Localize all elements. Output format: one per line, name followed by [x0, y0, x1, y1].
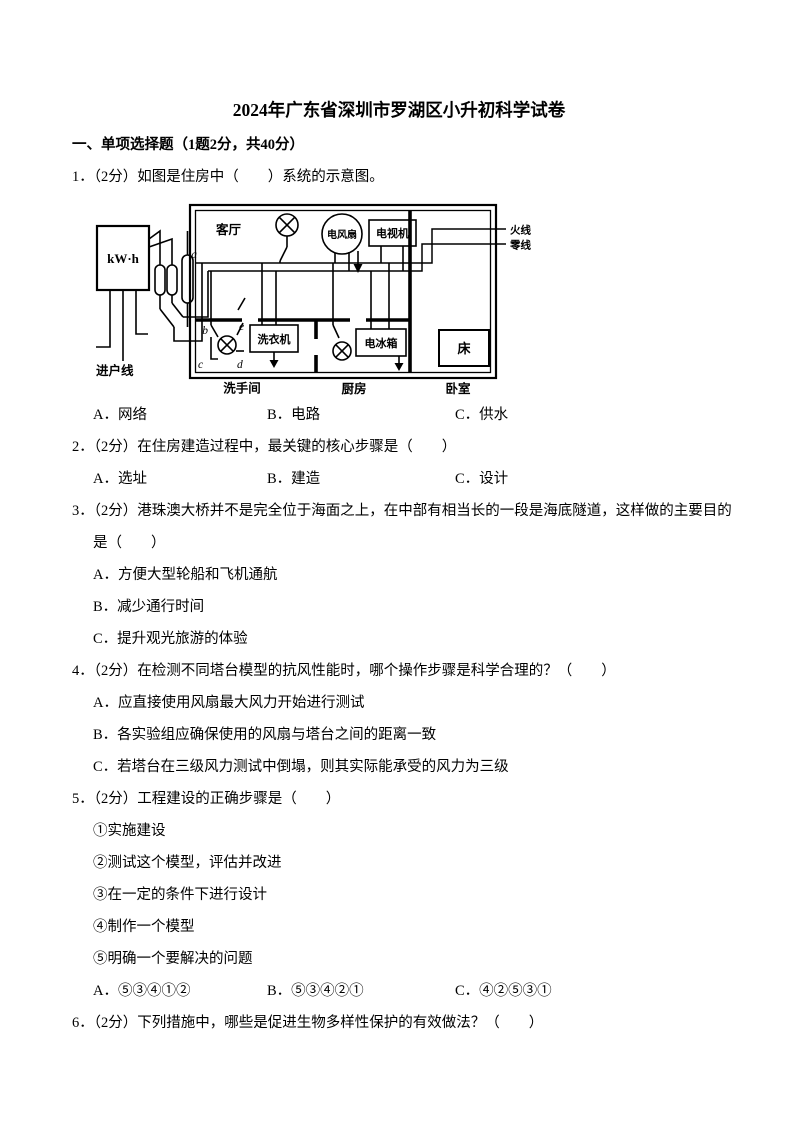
- bedroom-label: 卧室: [445, 381, 471, 396]
- section-heading: 一、单项选择题（1题2分，共40分）: [72, 129, 726, 161]
- diagram-point-a: a: [191, 249, 197, 261]
- option-b: B．各实验组应确保使用的风扇与塔台之间的距离一致: [72, 719, 726, 751]
- option-a: A．⑤③④①②: [93, 975, 267, 1007]
- fan-label: 电风扇: [327, 228, 357, 241]
- bathroom-label: 洗手间: [223, 381, 261, 396]
- question-1: 1．（2分）如图是住房中（ ）系统的示意图。: [72, 161, 726, 431]
- incoming-line-label: 进户线: [96, 363, 134, 378]
- living-room-label: 客厅: [215, 222, 242, 237]
- kitchen-label: 厨房: [341, 381, 366, 396]
- option-c: C．提升观光旅游的体验: [72, 623, 726, 655]
- diagram-point-d: d: [237, 359, 243, 371]
- bathroom-circuit: [211, 271, 245, 359]
- option-b: B．⑤③④②①: [267, 975, 455, 1007]
- option-a: A．应直接使用风扇最大风力开始进行测试: [72, 687, 726, 719]
- question-6-stem: 6．（2分）下列措施中，哪些是促进生物多样性保护的有效做法？（ ）: [72, 1007, 726, 1039]
- option-a: A．选址: [93, 463, 267, 495]
- lamp-icon: [276, 214, 298, 263]
- option-c: C．供水: [455, 399, 726, 431]
- question-5: 5．（2分）工程建设的正确步骤是（ ） ①实施建设 ②测试这个模型，评估并改进 …: [72, 783, 726, 1007]
- diagram-point-b: b: [202, 325, 208, 337]
- live-wire-label: 火线: [510, 224, 531, 237]
- step-item-2: ②测试这个模型，评估并改进: [72, 847, 726, 879]
- page-title: 2024年广东省深圳市罗湖区小升初科学试卷: [72, 97, 726, 123]
- step-item-5: ⑤明确一个要解决的问题: [72, 943, 726, 975]
- question-5-stem: 5．（2分）工程建设的正确步骤是（ ）: [72, 783, 726, 815]
- bed-label: 床: [457, 341, 471, 356]
- incoming-wires: [96, 290, 148, 361]
- diagram-point-c: c: [198, 359, 203, 371]
- option-b: B．电路: [267, 399, 455, 431]
- question-2-options: A．选址 B．建造 C．设计: [72, 463, 726, 495]
- fan-icon: [322, 214, 363, 273]
- washer-label: 洗衣机: [258, 332, 291, 346]
- house-circuit-diagram: kW·h 进户线 客厅 电风扇 电视机 洗衣机 电冰箱 床 洗手间 厨房 卧室 …: [90, 201, 542, 397]
- fuse-switch-cluster: [149, 231, 208, 341]
- question-2-stem: 2．（2分）在住房建造过程中，最关键的核心步骤是（ ）: [72, 431, 726, 463]
- kitchen-circuit: [333, 263, 351, 360]
- circuit-diagram-figure: kW·h 进户线 客厅 电风扇 电视机 洗衣机 电冰箱 床 洗手间 厨房 卧室 …: [90, 201, 542, 397]
- exam-paper-page: 2024年广东省深圳市罗湖区小升初科学试卷 一、单项选择题（1题2分，共40分）…: [0, 0, 794, 1123]
- question-3-stem-line1: 3．（2分）港珠澳大桥并不是完全位于海面之上，在中部有相当长的一段是海底隧道，这…: [72, 495, 726, 527]
- question-1-stem: 1．（2分）如图是住房中（ ）系统的示意图。: [72, 161, 726, 193]
- question-6: 6．（2分）下列措施中，哪些是促进生物多样性保护的有效做法？（ ）: [72, 1007, 726, 1039]
- neutral-wire-label: 零线: [509, 239, 531, 252]
- question-4: 4．（2分）在检测不同塔台模型的抗风性能时，哪个操作步骤是科学合理的？（ ） A…: [72, 655, 726, 783]
- question-1-options: A．网络 B．电路 C．供水: [72, 399, 726, 431]
- meter-label: kW·h: [107, 251, 140, 266]
- diagram-point-e: e: [239, 321, 244, 333]
- question-5-options: A．⑤③④①② B．⑤③④②① C．④②⑤③①: [72, 975, 726, 1007]
- option-b: B．建造: [267, 463, 455, 495]
- option-c: C．设计: [455, 463, 726, 495]
- option-b: B．减少通行时间: [72, 591, 726, 623]
- option-a: A．方便大型轮船和飞机通航: [72, 559, 726, 591]
- question-2: 2．（2分）在住房建造过程中，最关键的核心步骤是（ ） A．选址 B．建造 C．…: [72, 431, 726, 495]
- washer-box: [250, 263, 298, 368]
- question-4-stem: 4．（2分）在检测不同塔台模型的抗风性能时，哪个操作步骤是科学合理的？（ ）: [72, 655, 726, 687]
- step-item-4: ④制作一个模型: [72, 911, 726, 943]
- fridge-label: 电冰箱: [365, 336, 398, 350]
- question-3: 3．（2分）港珠澳大桥并不是完全位于海面之上，在中部有相当长的一段是海底隧道，这…: [72, 495, 726, 655]
- option-a: A．网络: [93, 399, 267, 431]
- step-item-3: ③在一定的条件下进行设计: [72, 879, 726, 911]
- step-item-1: ①实施建设: [72, 815, 726, 847]
- tv-label: 电视机: [376, 226, 409, 240]
- option-c: C．④②⑤③①: [455, 975, 726, 1007]
- option-c: C．若塔台在三级风力测试中倒塌，则其实际能承受的风力为三级: [72, 751, 726, 783]
- question-3-stem-line2: 是（ ）: [72, 527, 726, 559]
- fridge-box: [356, 263, 406, 371]
